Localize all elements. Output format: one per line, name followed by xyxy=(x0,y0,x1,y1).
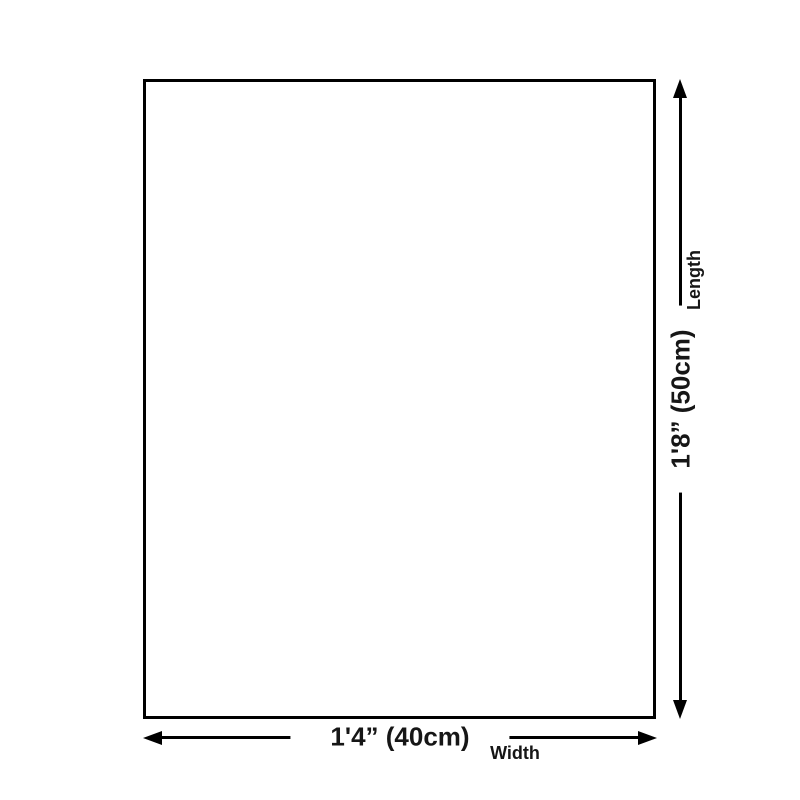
width-axis-label: Width xyxy=(490,744,540,764)
arrow-up-icon xyxy=(673,79,687,98)
arrow-left-icon xyxy=(143,731,162,745)
width-value-label: 1'4” (40cm) xyxy=(290,721,509,754)
length-axis-label: Length xyxy=(685,250,705,310)
product-outline-rectangle xyxy=(143,79,656,719)
length-value-label: 1'8” (50cm) xyxy=(665,305,698,492)
size-diagram: 1'8” (50cm) Length 1'4” (40cm) Width xyxy=(0,0,800,800)
arrow-down-icon xyxy=(673,700,687,719)
arrow-right-icon xyxy=(638,731,657,745)
